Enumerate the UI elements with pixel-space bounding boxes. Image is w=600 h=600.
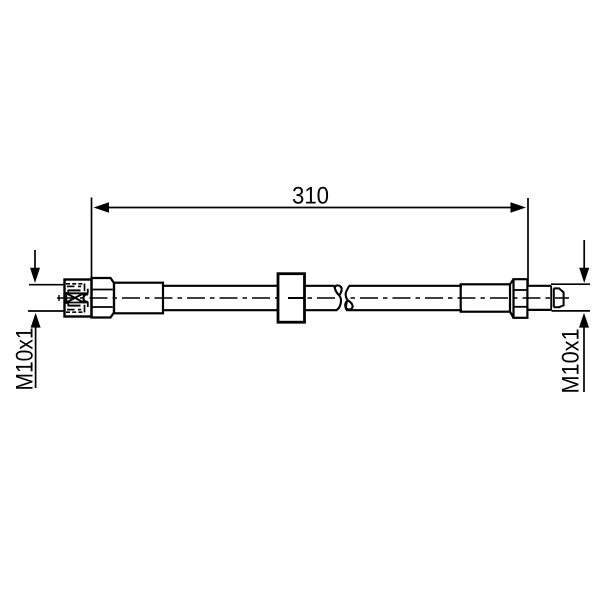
svg-text:M10x1: M10x1: [12, 328, 39, 391]
svg-text:310: 310: [292, 183, 329, 210]
svg-text:M10x1: M10x1: [558, 329, 585, 394]
